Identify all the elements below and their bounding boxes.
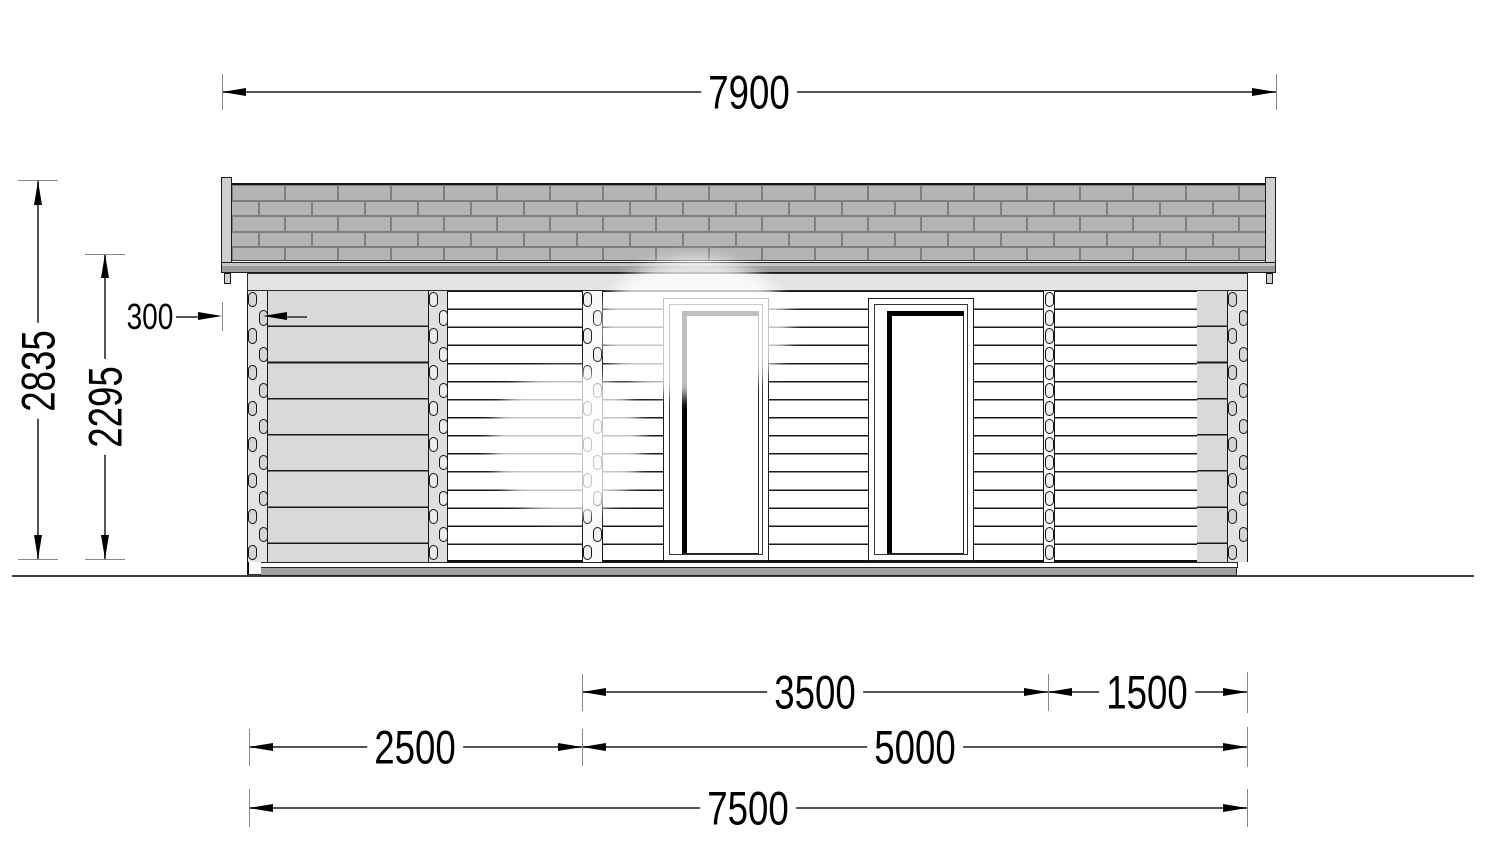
log-end [1045,545,1054,560]
dim-span-5000-label: 5000 [867,724,963,771]
shingle [1027,216,1080,232]
log-end [1045,383,1054,398]
roof-trim-right [1265,177,1276,264]
shingle [1133,185,1186,201]
log-end [1239,419,1248,434]
shingle [815,216,868,232]
shingle [497,216,550,232]
shingle [497,247,550,261]
dim-overhang-label: 300 [122,299,178,335]
dim-base-total-label: 7500 [700,785,796,832]
shingle [948,201,1001,217]
log-end [1239,455,1248,470]
shingle [630,232,683,248]
shingle [1107,232,1160,248]
shingle [1213,232,1266,248]
dim-arrow [1223,688,1247,696]
shingle [630,201,683,217]
shingle [232,201,259,217]
log-end [429,509,438,524]
log-end [259,383,268,398]
dim-arrow [1252,88,1276,96]
shingle [1213,201,1266,217]
shingle [550,216,603,232]
shingle [338,185,391,201]
dim-tick [18,559,58,560]
shingle [1186,216,1239,232]
shingle [391,216,444,232]
shingle [1186,185,1239,201]
dim-wall-height-label: 2295 [82,359,129,455]
roof-trim-left [221,177,232,264]
shingle [789,232,842,248]
dim-tick [85,559,125,560]
shingle [232,216,285,232]
shingle [736,232,789,248]
log-end [429,292,438,307]
dim-total-height-label: 2835 [15,323,62,419]
log-end [1239,527,1248,542]
dim-tick [249,729,250,766]
dim-arrow [34,535,42,559]
log-end [248,328,257,343]
roof-shingles [232,183,1265,261]
shingle [1239,247,1265,261]
log-end [259,491,268,506]
shingle [285,216,338,232]
log-end [583,328,592,343]
log-end [429,365,438,380]
shingle [762,185,815,201]
shingle [1054,201,1107,217]
shingle [656,216,709,232]
dim-tick [18,180,58,181]
log-end [1239,347,1248,362]
shingle [497,185,550,201]
log-end [439,383,448,398]
elevation-drawing: 7900 2835 2295 300 3500 1500 2500 5000 7… [0,0,1500,861]
shingle [603,216,656,232]
shingle [338,216,391,232]
shingle [365,232,418,248]
shingle [418,201,471,217]
log-end [1228,401,1237,416]
shingle [338,247,391,261]
log-end [429,473,438,488]
shingle [444,185,497,201]
log-end [583,545,592,560]
door-right-leaf [887,311,964,554]
dim-tick [1247,789,1248,827]
shingle [1239,185,1265,201]
log-end [1045,292,1054,307]
log-end [1228,292,1237,307]
dim-span-2500-label: 2500 [367,724,463,771]
log-end [248,545,257,560]
log-end [439,310,448,325]
shingle [232,185,285,201]
shingle [974,247,1027,261]
fascia-bracket-left [224,273,231,284]
dim-span-3500-label: 3500 [767,669,863,716]
log-end [1228,545,1237,560]
log-end [439,347,448,362]
dim-arrow [101,254,109,278]
shingle [259,232,312,248]
shingle [842,232,895,248]
log-end [1228,365,1237,380]
dim-overhang-tail [287,316,307,317]
log-end [1045,328,1054,343]
log-end [1045,527,1054,542]
shingle [577,201,630,217]
dim-arrow [249,743,273,751]
shingle [868,247,921,261]
shingle [656,185,709,201]
dim-arrow [582,688,606,696]
shingle [921,247,974,261]
shingle [709,216,762,232]
log-end [439,419,448,434]
watermark-blob [492,368,642,518]
shingle [895,201,948,217]
shingle [736,201,789,217]
shingle [1133,216,1186,232]
dim-tick [1048,674,1049,711]
shingle [921,216,974,232]
dim-roof-width-label: 7900 [701,69,797,116]
dim-tick [1276,74,1277,110]
dim-arrow [1048,688,1072,696]
log-end [1045,473,1054,488]
shingle [762,216,815,232]
shingle [1080,216,1133,232]
shingle [1133,247,1186,261]
dim-span-1500-label: 1500 [1099,669,1195,716]
log-end [259,419,268,434]
shingle [259,201,312,217]
dim-tick [582,729,583,766]
log-end [1045,455,1054,470]
log-end [583,292,592,307]
shingle [1160,232,1213,248]
shingle [391,247,444,261]
shingle [391,185,444,201]
shingle [683,201,736,217]
log-end [259,527,268,542]
shingle [232,247,285,261]
shingle [1001,232,1054,248]
log-end [1045,509,1054,524]
log-end [1239,383,1248,398]
shingle [1027,247,1080,261]
shingle [550,247,603,261]
shingle [577,232,630,248]
shingle [1107,201,1160,217]
log-end [248,401,257,416]
log-end [429,545,438,560]
shingle [1239,216,1265,232]
shingle [312,201,365,217]
shingle [1160,201,1213,217]
shingle [974,185,1027,201]
log-end [259,455,268,470]
dim-arrow [558,743,582,751]
log-end [1045,310,1054,325]
dim-arrow [1024,688,1048,696]
log-end [429,328,438,343]
log-end [1045,437,1054,452]
shingle [312,232,365,248]
shingle [921,185,974,201]
log-end [593,347,602,362]
log-end [429,401,438,416]
dim-arrow [222,88,246,96]
dim-arrow [582,743,606,751]
dim-tick [222,74,223,110]
dim-arrow [249,804,273,812]
shingle [365,201,418,217]
log-end [1045,365,1054,380]
shingle [471,201,524,217]
dim-arrow [263,312,287,320]
dim-arrow [198,312,222,320]
shingle [789,201,842,217]
log-end [593,527,602,542]
fascia-bracket-right [1266,273,1273,284]
shingle [524,232,577,248]
log-end [439,527,448,542]
shingle [868,216,921,232]
dim-arrow [34,181,42,205]
door-right [868,298,974,561]
shingle [232,232,259,248]
wall-corner-foot [247,562,261,575]
shingle [1080,185,1133,201]
log-end [248,365,257,380]
shingle [815,247,868,261]
shingle [444,247,497,261]
dim-tick [582,674,583,711]
log-end [1239,491,1248,506]
dim-tick [85,254,125,255]
shingle [524,201,577,217]
dim-tick [249,789,250,827]
log-end [248,437,257,452]
shingle [471,232,524,248]
shingle [815,185,868,201]
log-end [248,292,257,307]
dim-tick [1247,727,1248,767]
shingle [868,185,921,201]
shingle [603,247,656,261]
shingle [1001,201,1054,217]
shingle [709,185,762,201]
shingle [974,216,1027,232]
shingle [1080,247,1133,261]
log-end [1239,310,1248,325]
log-end [439,455,448,470]
watermark-blob [600,258,790,398]
log-end [1228,473,1237,488]
shingle [285,185,338,201]
log-end [1045,419,1054,434]
shingle [418,232,471,248]
dim-arrow [101,535,109,559]
shingle [285,247,338,261]
log-end [248,509,257,524]
log-end [1228,509,1237,524]
wall-shaded-right [1197,291,1230,562]
log-end [1228,328,1237,343]
log-end [1045,401,1054,416]
log-end [1228,437,1237,452]
shingle [1054,232,1107,248]
log-end [1045,491,1054,506]
dim-arrow [1223,804,1247,812]
shingle [603,185,656,201]
log-end [248,473,257,488]
shingle [444,216,497,232]
log-end [429,437,438,452]
wall-shaded-left [268,291,428,562]
shingle [948,232,1001,248]
shingle [1027,185,1080,201]
dim-arrow [1223,743,1247,751]
log-end [259,347,268,362]
dim-tick [222,302,223,331]
shingle [683,232,736,248]
log-end [1045,347,1054,362]
shingle [842,201,895,217]
shingle [762,247,815,261]
shingle [1186,247,1239,261]
foundation-strip [260,567,1237,576]
shingle [895,232,948,248]
dim-tick [1247,672,1248,713]
shingle [550,185,603,201]
log-end [439,491,448,506]
